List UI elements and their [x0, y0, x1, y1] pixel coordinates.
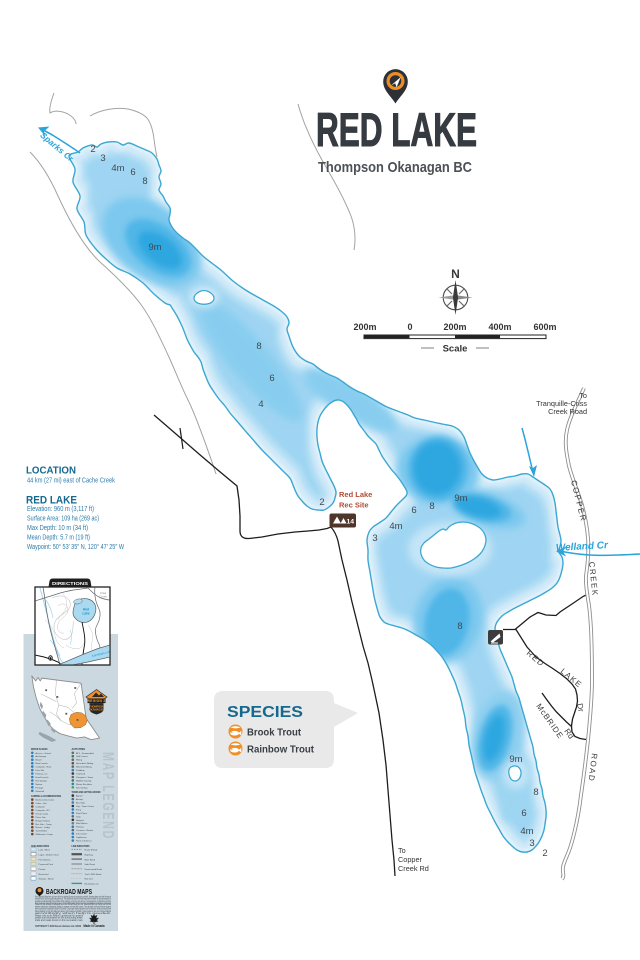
- svg-text:Fishing - Ice: Fishing - Ice: [36, 774, 49, 776]
- svg-text:Campsite: Campsite: [36, 806, 46, 809]
- svg-text:Beach: Beach: [36, 760, 43, 762]
- svg-text:Waterfall: Waterfall: [36, 790, 45, 793]
- svg-text:Horseback Riding: Horseback Riding: [76, 762, 94, 765]
- svg-text:Boundary Line: Boundary Line: [85, 883, 100, 886]
- svg-text:4: 4: [258, 399, 263, 410]
- svg-text:trails and roads found on this: trails and roads found on this recreatio…: [35, 919, 83, 922]
- svg-text:Red Lake: Red Lake: [339, 490, 372, 499]
- svg-text:Campsite - Boat: Campsite - Boat: [36, 766, 52, 769]
- svg-text:Anchorage: Anchorage: [36, 755, 47, 758]
- svg-text:Deactivated Road: Deactivated Road: [85, 868, 103, 871]
- svg-text:8: 8: [429, 501, 434, 512]
- svg-text:Lake / River: Lake / River: [39, 849, 51, 852]
- svg-text:DIRECTIONS: DIRECTIONS: [52, 581, 88, 586]
- svg-text:0: 0: [407, 322, 412, 332]
- svg-text:Waypoint: 50° 53′ 35″ N, 120°: Waypoint: 50° 53′ 35″ N, 120° 47′ 25″ W: [27, 543, 124, 551]
- svg-text:LOCATION: LOCATION: [26, 465, 76, 477]
- svg-text:Gate: Gate: [76, 815, 82, 818]
- svg-text:Campsite - RV: Campsite - RV: [36, 809, 51, 812]
- svg-text:Lake: Lake: [82, 612, 89, 616]
- svg-text:REGION 3: REGION 3: [88, 699, 106, 703]
- svg-text:Backcountry Camp: Backcountry Camp: [36, 799, 55, 802]
- svg-text:Kite Surfing: Kite Surfing: [76, 786, 88, 789]
- svg-text:Info Centre: Info Centre: [76, 833, 88, 836]
- svg-text:ACTIVITIES: ACTIVITIES: [72, 747, 86, 751]
- svg-text:Highway: Highway: [85, 855, 94, 857]
- svg-text:600m: 600m: [533, 322, 556, 332]
- svg-text:Creek Road: Creek Road: [548, 407, 587, 416]
- svg-text:Rec Site: Rec Site: [339, 501, 369, 510]
- svg-text:Trailhead: Trailhead: [76, 773, 86, 776]
- svg-text:MAP LEGEND: MAP LEGEND: [99, 752, 116, 840]
- svg-text:Trail / 4WD Road: Trail / 4WD Road: [85, 873, 102, 876]
- svg-text:TOWNS AND GETTING AROUND: TOWNS AND GETTING AROUND: [72, 790, 101, 794]
- svg-text:3: 3: [372, 533, 377, 544]
- svg-text:Trail Shelter: Trail Shelter: [36, 830, 48, 833]
- svg-text:Hot Springs: Hot Springs: [36, 779, 48, 782]
- svg-text:Marina: Marina: [36, 783, 43, 786]
- svg-text:9m: 9m: [148, 242, 161, 253]
- svg-text:200m: 200m: [353, 322, 376, 332]
- svg-text:Wilderness Camp: Wilderness Camp: [36, 833, 54, 836]
- svg-text:4m: 4m: [520, 826, 533, 837]
- svg-text:LINE INDICATORS: LINE INDICATORS: [72, 844, 90, 848]
- svg-text:OKANAGAN: OKANAGAN: [89, 708, 104, 712]
- svg-text:Dive Site: Dive Site: [36, 769, 46, 772]
- svg-text:First Nations: First Nations: [39, 858, 52, 861]
- svg-text:9m: 9m: [509, 754, 522, 765]
- svg-text:Ranger Station: Ranger Station: [36, 819, 51, 822]
- svg-text:Portage: Portage: [36, 786, 44, 789]
- svg-text:44 km (27 mi) east of Cache Cr: 44 km (27 mi) east of Cache Creek: [27, 478, 115, 485]
- svg-text:Private: Private: [39, 868, 47, 871]
- svg-text:Provincial Park: Provincial Park: [39, 863, 54, 866]
- svg-text:4m: 4m: [389, 521, 402, 532]
- svg-text:6: 6: [411, 505, 416, 516]
- svg-text:Rainbow Trout: Rainbow Trout: [247, 744, 314, 756]
- svg-text:WATER ACCESS: WATER ACCESS: [31, 747, 48, 751]
- svg-text:Lighthouse: Lighthouse: [76, 836, 87, 839]
- svg-text:Scale: Scale: [443, 344, 468, 355]
- svg-text:RED LAKE: RED LAKE: [26, 495, 77, 507]
- svg-text:Copper: Copper: [398, 855, 423, 864]
- svg-text:Customs - Border: Customs - Border: [76, 829, 93, 832]
- svg-text:Float Plane: Float Plane: [76, 812, 88, 815]
- svg-text:COPYRIGHT © 2023 Mussio Ventur: COPYRIGHT © 2023 Mussio Ventures Ltd. #2…: [35, 924, 81, 928]
- svg-text:6: 6: [269, 373, 274, 384]
- svg-text:2: 2: [319, 497, 324, 508]
- svg-text:Parking: Parking: [76, 826, 84, 829]
- svg-text:SPECIES: SPECIES: [227, 704, 303, 721]
- svg-text:Wildlife Viewing: Wildlife Viewing: [76, 780, 92, 782]
- svg-text:9m: 9m: [454, 493, 467, 504]
- svg-text:8: 8: [533, 787, 538, 798]
- svg-text:Mountain Biking: Mountain Biking: [76, 766, 92, 769]
- svg-text:Max Depth: 10 m (34 ft): Max Depth: 10 m (34 ft): [27, 525, 88, 532]
- svg-text:Rail Line: Rail Line: [85, 879, 94, 881]
- svg-text:Made in Canada: Made in Canada: [84, 924, 105, 928]
- svg-text:Access - Gravel: Access - Gravel: [36, 752, 52, 755]
- svg-text:Hiking: Hiking: [76, 760, 83, 762]
- svg-text:BACKROAD MAPS: BACKROAD MAPS: [46, 889, 92, 896]
- svg-text:Rec Site - Camp: Rec Site - Camp: [36, 823, 53, 826]
- svg-text:To: To: [398, 846, 406, 855]
- svg-text:200m: 200m: [443, 322, 466, 332]
- svg-text:Ferry: Ferry: [76, 808, 82, 811]
- svg-text:Viewpoint - Tower: Viewpoint - Tower: [76, 776, 93, 779]
- svg-text:Resort - Lodge: Resort - Lodge: [36, 826, 51, 829]
- svg-text:Brook Trout: Brook Trout: [247, 727, 301, 739]
- svg-text:Airstrip: Airstrip: [76, 798, 84, 801]
- svg-text:6: 6: [130, 167, 135, 178]
- svg-text:Thompson Okanagan BC: Thompson Okanagan BC: [318, 159, 472, 176]
- svg-text:Legal - Skillset Chart: Legal - Skillset Chart: [39, 854, 60, 857]
- svg-text:Cabin - Hut: Cabin - Hut: [36, 802, 47, 805]
- svg-text:RED LAKE: RED LAKE: [316, 103, 477, 156]
- svg-text:8: 8: [457, 621, 462, 632]
- svg-text:City - Town Centre: City - Town Centre: [76, 805, 95, 808]
- svg-text:Boat Launch: Boat Launch: [36, 762, 49, 765]
- svg-text:3: 3: [529, 838, 534, 849]
- svg-text:N: N: [451, 267, 460, 281]
- svg-text:2: 2: [90, 144, 95, 155]
- svg-text:Golf Course: Golf Course: [76, 755, 88, 758]
- svg-text:CAMPING & ACCOMMODATIONS: CAMPING & ACCOMMODATIONS: [31, 794, 61, 798]
- svg-text:8: 8: [256, 341, 261, 352]
- svg-text:Elevation: 960 m (3,117 ft): Elevation: 960 m (3,117 ft): [27, 506, 94, 513]
- svg-text:6: 6: [521, 808, 526, 819]
- svg-text:2: 2: [542, 848, 547, 859]
- svg-text:8: 8: [142, 176, 147, 187]
- svg-text:3: 3: [100, 153, 105, 164]
- svg-text:Main Road: Main Road: [85, 859, 96, 861]
- svg-text:Restricted: Restricted: [39, 873, 50, 876]
- svg-text:Swamp - Marsh: Swamp - Marsh: [39, 878, 55, 881]
- svg-text:Bus Stop: Bus Stop: [76, 802, 86, 805]
- svg-text:Hand Launch: Hand Launch: [36, 777, 50, 779]
- svg-text:Point of Interest: Point of Interest: [76, 840, 92, 843]
- svg-text:ATV - Snowmobile: ATV - Snowmobile: [76, 752, 95, 755]
- svg-text:Group Camp: Group Camp: [36, 812, 49, 815]
- svg-text:Creek: Creek: [99, 595, 107, 599]
- svg-text:Mean Depth: 5.7 m (19 ft): Mean Depth: 5.7 m (19 ft): [27, 535, 90, 542]
- svg-text:14: 14: [347, 519, 355, 526]
- svg-text:Picnic Site: Picnic Site: [36, 816, 47, 819]
- svg-text:Airport: Airport: [76, 795, 83, 798]
- svg-text:Paddling: Paddling: [76, 770, 85, 772]
- svg-text:Route (Float): Route (Float): [85, 849, 98, 852]
- svg-text:Surface Area: 109 ha (269 ac): Surface Area: 109 ha (269 ac): [27, 516, 99, 523]
- svg-text:Winter Rec Area: Winter Rec Area: [76, 783, 93, 786]
- svg-text:Helipad: Helipad: [76, 820, 84, 822]
- svg-text:Creek Rd: Creek Rd: [398, 864, 429, 873]
- svg-text:Mile Marker: Mile Marker: [76, 822, 88, 825]
- svg-text:Side Road: Side Road: [85, 864, 96, 866]
- svg-text:4m: 4m: [111, 163, 124, 174]
- svg-text:400m: 400m: [488, 322, 511, 332]
